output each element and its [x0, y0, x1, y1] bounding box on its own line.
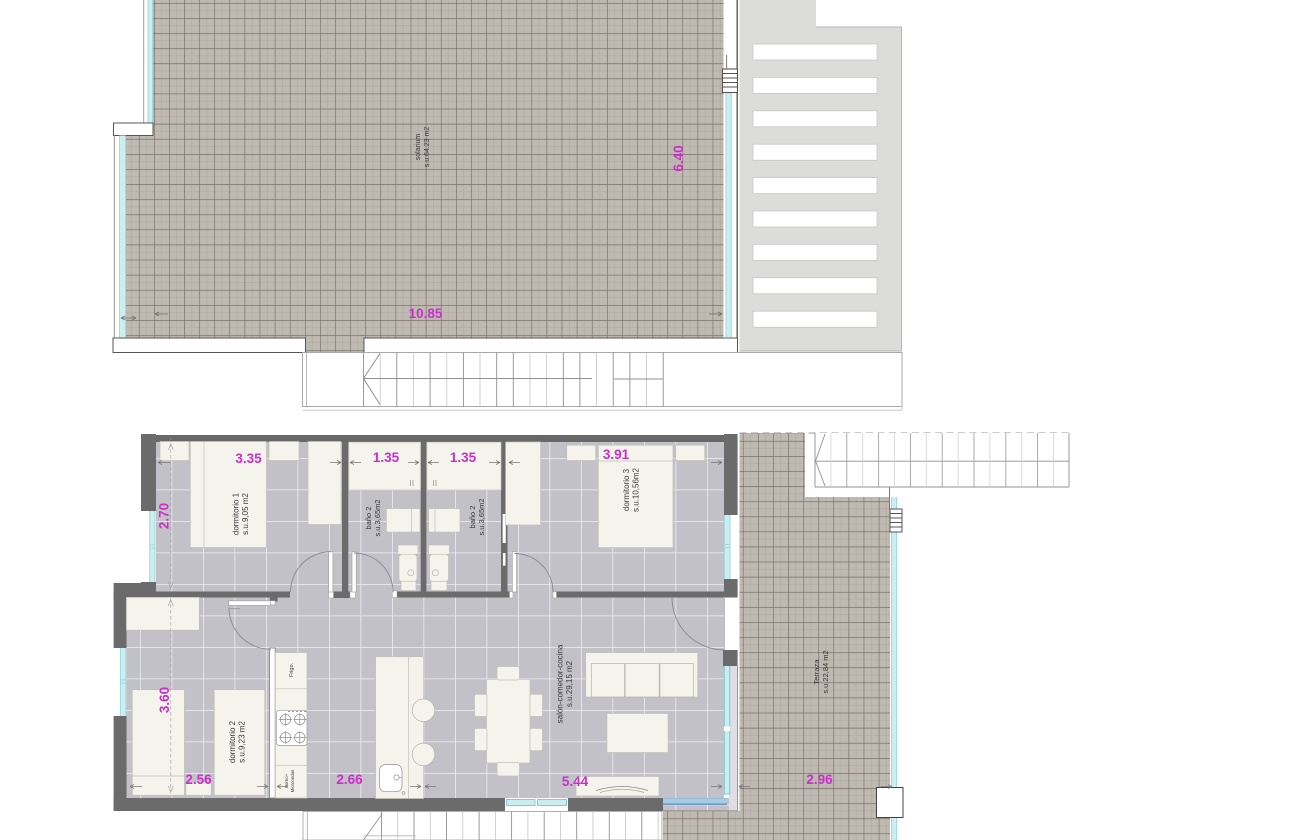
svg-text:baño 2: baño 2 — [468, 506, 477, 529]
svg-text:2.56: 2.56 — [185, 772, 212, 787]
svg-text:Microondas: Microondas — [290, 769, 295, 792]
svg-text:10.85: 10.85 — [409, 306, 443, 321]
svg-text:s.u.3,65m2: s.u.3,65m2 — [373, 499, 382, 536]
svg-text:s.u.3,65m2: s.u.3,65m2 — [477, 498, 486, 535]
svg-text:Terraza: Terraza — [812, 659, 821, 685]
svg-text:s.u.9,23 m2: s.u.9,23 m2 — [238, 721, 247, 763]
svg-text:3.35: 3.35 — [235, 451, 262, 466]
svg-text:Frigo.: Frigo. — [289, 663, 295, 678]
svg-text:1.35: 1.35 — [450, 450, 477, 465]
svg-text:s.u.29,15 m2: s.u.29,15 m2 — [565, 660, 574, 707]
svg-text:s.u.64.23 m2: s.u.64.23 m2 — [424, 127, 431, 168]
svg-text:s.u.10,56m2: s.u.10,56m2 — [632, 467, 641, 512]
svg-text:dormitorio 3: dormitorio 3 — [622, 468, 631, 511]
svg-text:2.70: 2.70 — [157, 503, 172, 529]
svg-text:baño 2: baño 2 — [364, 507, 373, 530]
svg-text:3.60: 3.60 — [157, 687, 172, 713]
svg-text:solarium: solarium — [415, 134, 422, 161]
svg-text:salón-comedor-cocina: salón-comedor-cocina — [556, 644, 565, 723]
svg-text:6.40: 6.40 — [671, 145, 686, 171]
svg-text:s.u.22,84 m2: s.u.22,84 m2 — [821, 650, 830, 693]
svg-text:s.u.9,05 m2: s.u.9,05 m2 — [241, 493, 250, 535]
svg-text:2.66: 2.66 — [336, 772, 363, 787]
svg-text:dormitorio 2: dormitorio 2 — [228, 720, 237, 763]
svg-text:1.35: 1.35 — [373, 450, 400, 465]
svg-text:3.91: 3.91 — [603, 447, 630, 462]
svg-text:Horno+: Horno+ — [284, 773, 289, 788]
svg-text:dormitorio 1: dormitorio 1 — [232, 492, 241, 535]
svg-text:2.96: 2.96 — [806, 772, 833, 787]
svg-text:5.44: 5.44 — [562, 774, 589, 789]
